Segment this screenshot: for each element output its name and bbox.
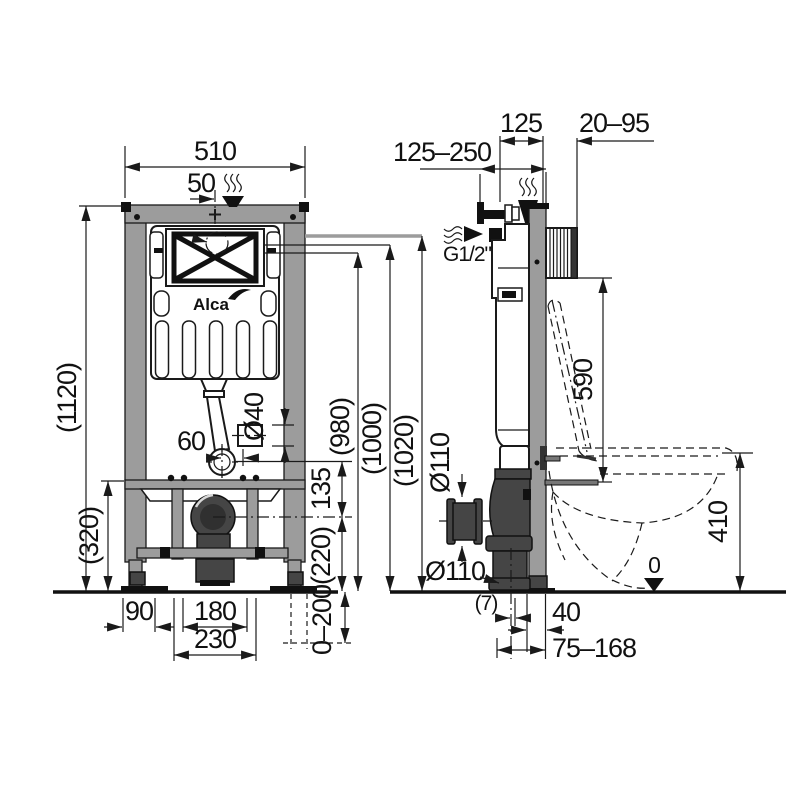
rail-corner-cap-left: [121, 202, 131, 212]
frame-post-side: [529, 208, 546, 586]
installation-frame-drawing: Alca: [0, 0, 800, 800]
dim-flush-pipe-diameter-label: Ø40: [239, 393, 269, 441]
dim-outlet-diameter-upper: Ø110: [425, 433, 462, 562]
dim-outlet-wall-distance-label: 40: [552, 597, 580, 627]
brand-logo-text: Alca: [193, 295, 229, 314]
dim-flush-bend-offset-label: 60: [177, 426, 205, 456]
dim-frame-depth-label: 125: [500, 108, 542, 138]
floor-datum-label: 0: [648, 552, 660, 578]
frame-lower-rail: [125, 480, 305, 489]
mounting-rod-upper: [545, 456, 560, 461]
dim-level-980-label: (980): [325, 398, 355, 456]
datum-triangle-icon: [644, 578, 664, 592]
dim-outlet-diameter-lower: Ø110: [425, 556, 499, 586]
cistern-side-profile: [492, 224, 529, 471]
dim-pipe-offset: (7): [475, 592, 530, 626]
flush-plate-shaft: [546, 228, 577, 278]
dim-frame-depth: 125: [500, 108, 543, 141]
dim-bowl-height-label: 410: [703, 501, 733, 543]
rail-bolt-right: [290, 214, 296, 220]
cistern-bracket-left: [150, 232, 163, 278]
drain-outlet-box: [196, 559, 234, 582]
dim-outlet-width-label: 180: [194, 596, 236, 626]
frame-post-right: [284, 206, 305, 562]
mounting-rod-lower: [545, 480, 598, 485]
water-inlet-assembly: [477, 202, 519, 224]
dim-outlet-height-label: (220): [306, 527, 336, 585]
frame-post-left: [125, 206, 146, 562]
dim-leg-adjustment-label: 0–200: [307, 585, 337, 655]
dim-level-1020-label: (1020): [389, 415, 419, 487]
dim-wall-thickness-label: 20–95: [579, 108, 649, 138]
dim-overall-width-label: 510: [194, 136, 236, 166]
steam-icon-g12: [444, 227, 462, 244]
dim-inlet-offset: 50: [187, 168, 215, 199]
front-view: Alca: [52, 136, 422, 661]
bracket-hook-left: [154, 248, 163, 253]
dim-outlet-range-label: 75–168: [552, 633, 636, 663]
hot-water-steam-icon: [225, 174, 242, 192]
rail-corner-cap-right: [299, 202, 309, 212]
dim-overall-height-label: (1120): [52, 363, 82, 433]
floor-datum-marker: 0: [644, 552, 664, 592]
frame-bottom-rail: [137, 548, 288, 558]
dim-lower-frame-height-label: (320): [74, 507, 104, 565]
dim-outlet-range: 75–168: [497, 633, 636, 663]
dim-leg-adjustment: 0–200: [283, 585, 353, 655]
dim-inlet-offset-label: 50: [187, 168, 215, 198]
dim-foot-offset-label: 90: [125, 596, 153, 626]
outlet-coupling: [439, 499, 492, 544]
dim-base-widths: 90 180 230: [104, 596, 256, 661]
dim-outlet-diameter-upper-label: Ø110: [425, 433, 455, 493]
water-connection-label: G1/2": [443, 243, 492, 266]
side-view: 125 20–95 125–250: [390, 108, 786, 663]
technical-drawing-page: Alca: [0, 0, 800, 800]
dim-bend-to-outlet-label: 135: [306, 468, 336, 510]
dim-inlet-height-range: 125–250: [393, 137, 546, 169]
bracket-hook-right: [267, 248, 276, 253]
frame-foot-side: [529, 576, 547, 589]
flush-housing-side: [500, 446, 529, 471]
steam-icon-side-top: [520, 178, 537, 196]
dim-lower-frame-height: (320): [74, 481, 124, 591]
dim-cistern-top-height-label: 590: [568, 359, 598, 401]
dim-outlet-frame-width-label: 230: [194, 624, 236, 654]
inlet-arrow-icon: [464, 226, 483, 242]
cistern-bracket-right: [267, 232, 280, 278]
dim-cistern-top-height: 590: [568, 278, 612, 482]
dim-outlet-diameter-lower-label: Ø110: [425, 556, 485, 586]
dim-inlet-height-range-label: 125–250: [393, 137, 491, 167]
rail-bolt-left: [134, 214, 140, 220]
dim-wall-thickness: 20–95: [577, 108, 654, 141]
dim-level-1000-label: (1000): [357, 403, 387, 475]
dim-pipe-offset-label: (7): [475, 592, 498, 615]
